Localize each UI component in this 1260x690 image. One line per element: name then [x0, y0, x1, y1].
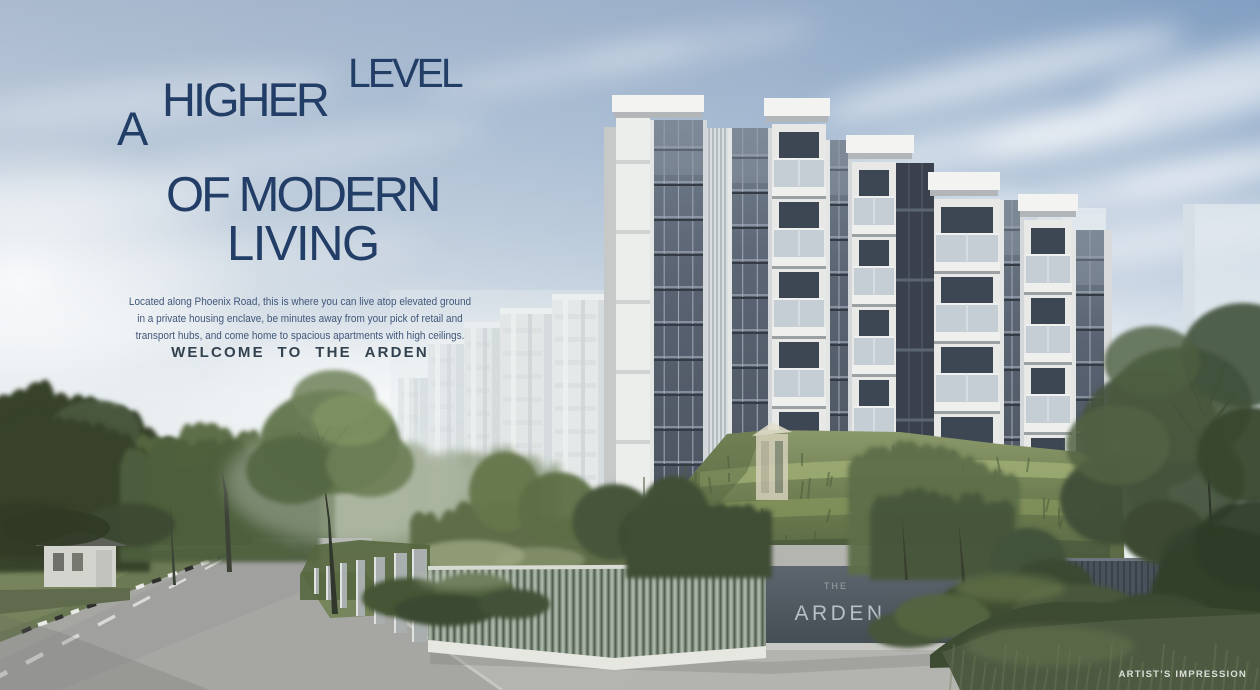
- svg-text:ARDEN: ARDEN: [794, 602, 885, 625]
- svg-text:THE: THE: [824, 581, 848, 591]
